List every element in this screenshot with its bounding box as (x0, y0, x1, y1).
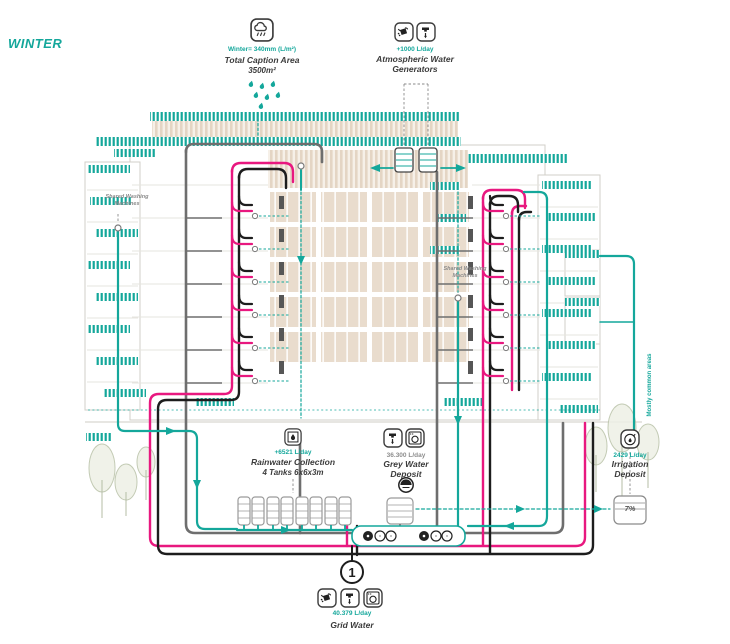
atmospheric-value: +1000 L/day (355, 46, 475, 53)
rainfall-value: Winter= 340mm (L/m²) (182, 46, 342, 53)
grid-water-number-badge: 1 (340, 560, 364, 584)
watering-can-icon (394, 22, 414, 42)
common-areas-label: Mostly common areas (647, 342, 653, 428)
rainwater-collection-icon (284, 428, 302, 446)
greywater-title: Grey Water Deposit (371, 459, 441, 479)
rainwater-title: Rainwater Collection (223, 457, 363, 467)
faucet-down-icon (383, 428, 403, 448)
shared-washing-label-left: Shared Washing Machines (102, 194, 152, 208)
watering-can-icon (317, 588, 337, 608)
pump-manifold (352, 526, 465, 546)
irrigation-tank-level: 7% (614, 504, 646, 513)
rainfall-title: Total Caption Area (182, 55, 342, 65)
rainwater-tanks (238, 497, 351, 530)
winter-water-diagram: WINTER Winter= 340mm (L/m²) Total Captio… (0, 0, 730, 644)
grid-water-title: Grid Water (292, 620, 412, 630)
grid-water-value: 40.379 L/day (292, 610, 412, 617)
rain-cloud-icon (250, 18, 274, 42)
raindrops-icon (245, 80, 281, 112)
rainwater-subtitle: 4 Tanks 6x6x3m (223, 468, 363, 478)
washing-machine-icon (363, 588, 383, 608)
faucet-down-icon (416, 22, 436, 42)
diagram-art (0, 0, 730, 644)
greywater-tank (387, 498, 413, 526)
irrigation-timer-icon (620, 429, 640, 449)
atmospheric-title: Atmospheric Water Generators (360, 54, 470, 74)
irrigation-title: Irrigation Deposit (600, 459, 660, 479)
washing-machine-icon (405, 428, 425, 448)
shared-washing-label-mid: Shared Washing Machines (440, 266, 490, 280)
season-label: WINTER (8, 36, 98, 51)
faucet-down-icon (340, 588, 360, 608)
rainwater-value: +6521 L/day (223, 449, 363, 456)
rainfall-subtitle: 3500m² (182, 66, 342, 76)
